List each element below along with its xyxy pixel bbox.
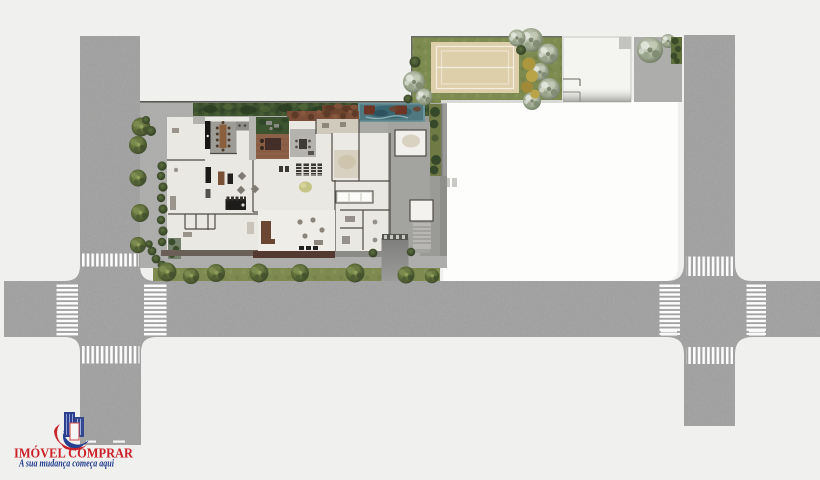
svg-text:A sua mudança começa aqui: A sua mudança começa aqui xyxy=(18,459,114,470)
